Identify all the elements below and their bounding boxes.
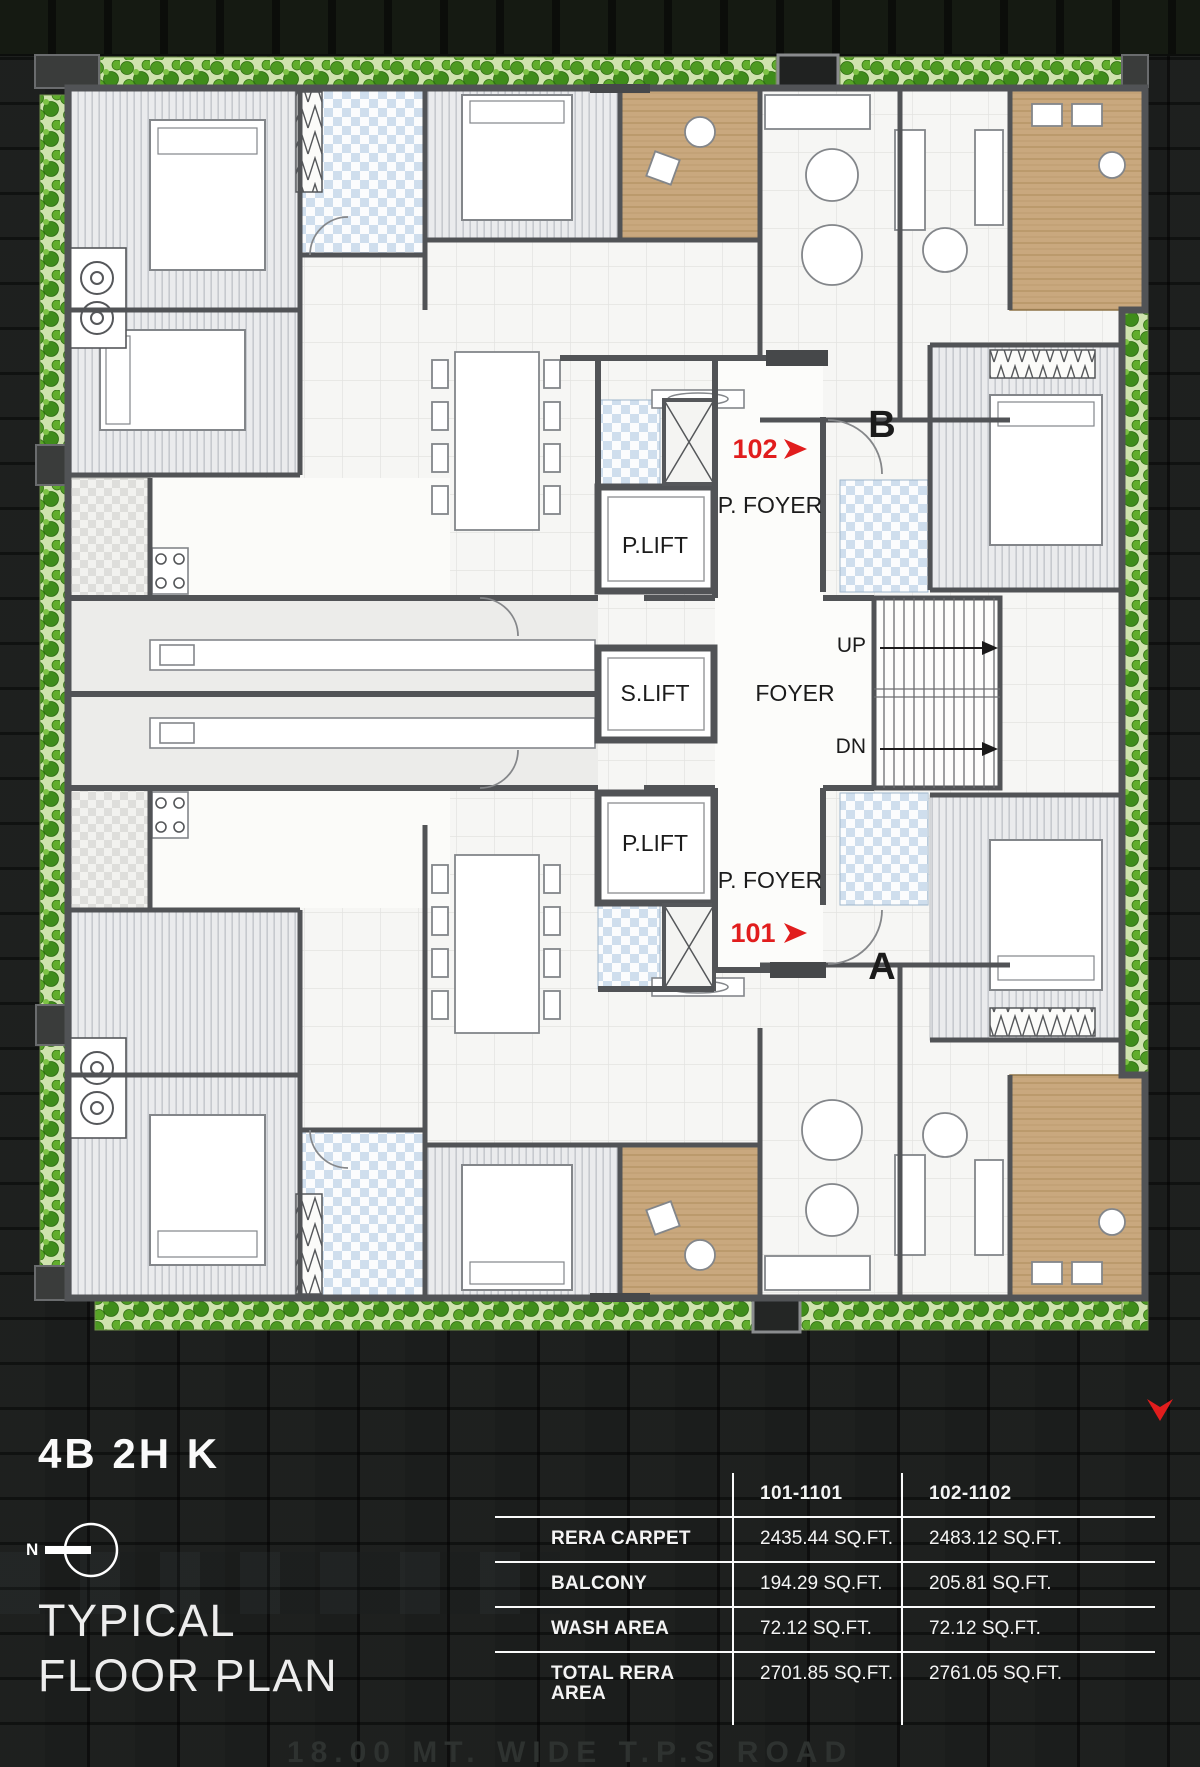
label-p-lift-bottom: P.LIFT xyxy=(622,830,688,856)
label-up: UP xyxy=(837,634,866,657)
table-header-unit-102: 102-1102 xyxy=(901,1473,1155,1516)
label-p-foyer-top: P. FOYER xyxy=(718,492,822,518)
table-cell: 205.81 SQ.FT. xyxy=(901,1561,1155,1606)
red-direction-arrow-icon xyxy=(1146,1398,1174,1422)
table-cell: 2761.05 SQ.FT. xyxy=(901,1651,1155,1726)
label-dn: DN xyxy=(836,735,866,758)
label-unit-letter-b: B xyxy=(868,404,895,446)
plan-subtitle-line2: FLOOR PLAN xyxy=(38,1649,338,1704)
table-cell: 2483.12 SQ.FT. xyxy=(901,1516,1155,1561)
compass-icon xyxy=(43,1520,125,1580)
table-row-label: WASH AREA xyxy=(495,1606,732,1651)
floor-plan: P.LIFT P. FOYER S.LIFT FOYER UP DN P.LIF… xyxy=(0,0,1200,1340)
table-header-unit-101: 101-1101 xyxy=(732,1473,901,1516)
label-s-lift: S.LIFT xyxy=(620,680,689,706)
area-table: 101-1101 102-1102 RERA CARPET 2435.44 SQ… xyxy=(495,1473,1155,1725)
north-compass: N xyxy=(26,1520,125,1580)
label-unit-101: 101 xyxy=(730,918,775,948)
table-corner xyxy=(495,1473,732,1516)
table-row-label: TOTAL RERA AREA xyxy=(495,1651,732,1726)
plan-subtitle-line1: TYPICAL xyxy=(38,1594,338,1649)
plan-title: 4B 2H K xyxy=(38,1430,220,1478)
label-p-lift-top: P.LIFT xyxy=(622,532,688,558)
table-row-label: BALCONY xyxy=(495,1561,732,1606)
label-foyer: FOYER xyxy=(755,680,834,706)
label-unit-102: 102 xyxy=(732,434,777,464)
plan-subtitle: TYPICAL FLOOR PLAN xyxy=(38,1594,338,1704)
road-label: 18.00 MT. WIDE T.P.S ROAD xyxy=(0,1736,1140,1767)
table-cell: 194.29 SQ.FT. xyxy=(732,1561,901,1606)
table-row-label: RERA CARPET xyxy=(495,1516,732,1561)
label-p-foyer-bottom: P. FOYER xyxy=(718,867,822,893)
staircase xyxy=(874,598,1000,788)
table-cell: 2701.85 SQ.FT. xyxy=(732,1651,901,1726)
label-unit-letter-a: A xyxy=(868,946,895,988)
table-cell: 72.12 SQ.FT. xyxy=(732,1606,901,1651)
table-cell: 72.12 SQ.FT. xyxy=(901,1606,1155,1651)
north-label: N xyxy=(26,1540,38,1560)
table-cell: 2435.44 SQ.FT. xyxy=(732,1516,901,1561)
brochure-page: P.LIFT P. FOYER S.LIFT FOYER UP DN P.LIF… xyxy=(0,0,1200,1767)
